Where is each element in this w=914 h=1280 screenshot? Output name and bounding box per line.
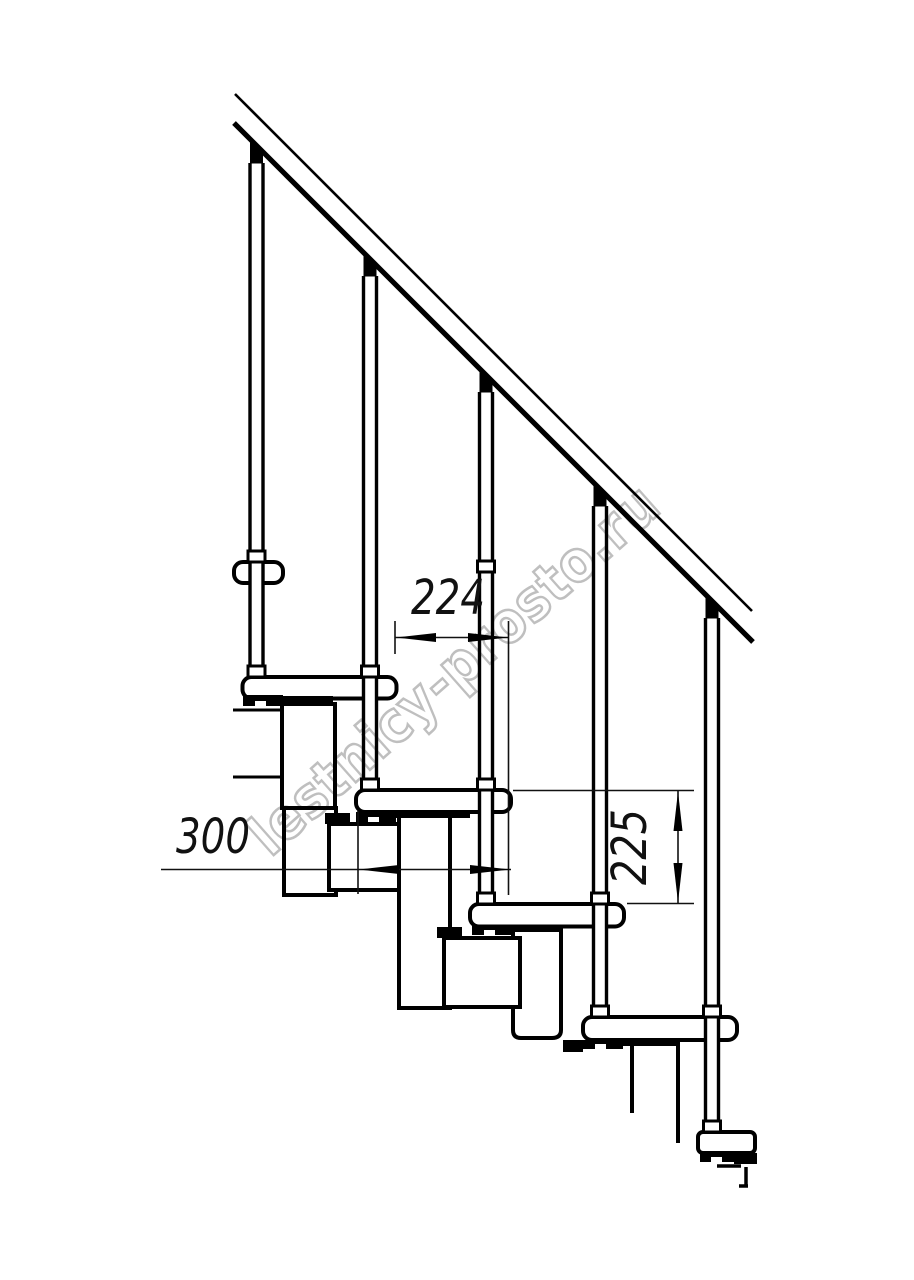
- bottom-bracket: [698, 1132, 755, 1153]
- drawing-page: 224 300 225 lestnicy-prosto.ru: [0, 0, 914, 1280]
- connector-notch: [255, 701, 266, 706]
- connector-notch: [595, 1044, 606, 1049]
- baluster-collar: [592, 1006, 609, 1017]
- baluster-collar: [704, 1006, 721, 1017]
- baluster-body-mask: [250, 163, 263, 677]
- connector-notch: [368, 817, 379, 822]
- module-box: [329, 824, 404, 890]
- wall-outline: [233, 710, 286, 777]
- dimension-label: 225: [602, 809, 658, 885]
- connector-band: [512, 926, 561, 932]
- connector-block: [734, 1153, 757, 1164]
- baluster-body-mask: [706, 618, 719, 1132]
- baluster-1: [248, 163, 265, 677]
- connector-notch: [711, 1157, 722, 1162]
- baluster-collar: [248, 551, 265, 562]
- staircase-technical-drawing: 224 300 225 lestnicy-prosto.ru: [0, 0, 914, 1280]
- baluster-collar: [248, 666, 265, 677]
- arrowhead-left: [396, 633, 436, 642]
- baluster-5: [704, 618, 721, 1132]
- arrowhead-down: [674, 863, 683, 903]
- arrowhead-up: [674, 792, 683, 832]
- baluster-collar: [704, 1121, 721, 1132]
- baluster-collar: [478, 779, 495, 790]
- connector-notch: [484, 930, 495, 935]
- module-top-connector: [563, 1040, 583, 1052]
- module-box: [444, 938, 520, 1007]
- baluster-collar: [362, 666, 379, 677]
- connector-band: [283, 696, 333, 705]
- connector-band: [396, 812, 470, 818]
- connector-band: [623, 1040, 678, 1046]
- module-top-connector: [437, 927, 462, 938]
- baluster-collar: [478, 893, 495, 904]
- baluster-collar: [592, 893, 609, 904]
- module-chain-cutoff: [632, 1042, 748, 1186]
